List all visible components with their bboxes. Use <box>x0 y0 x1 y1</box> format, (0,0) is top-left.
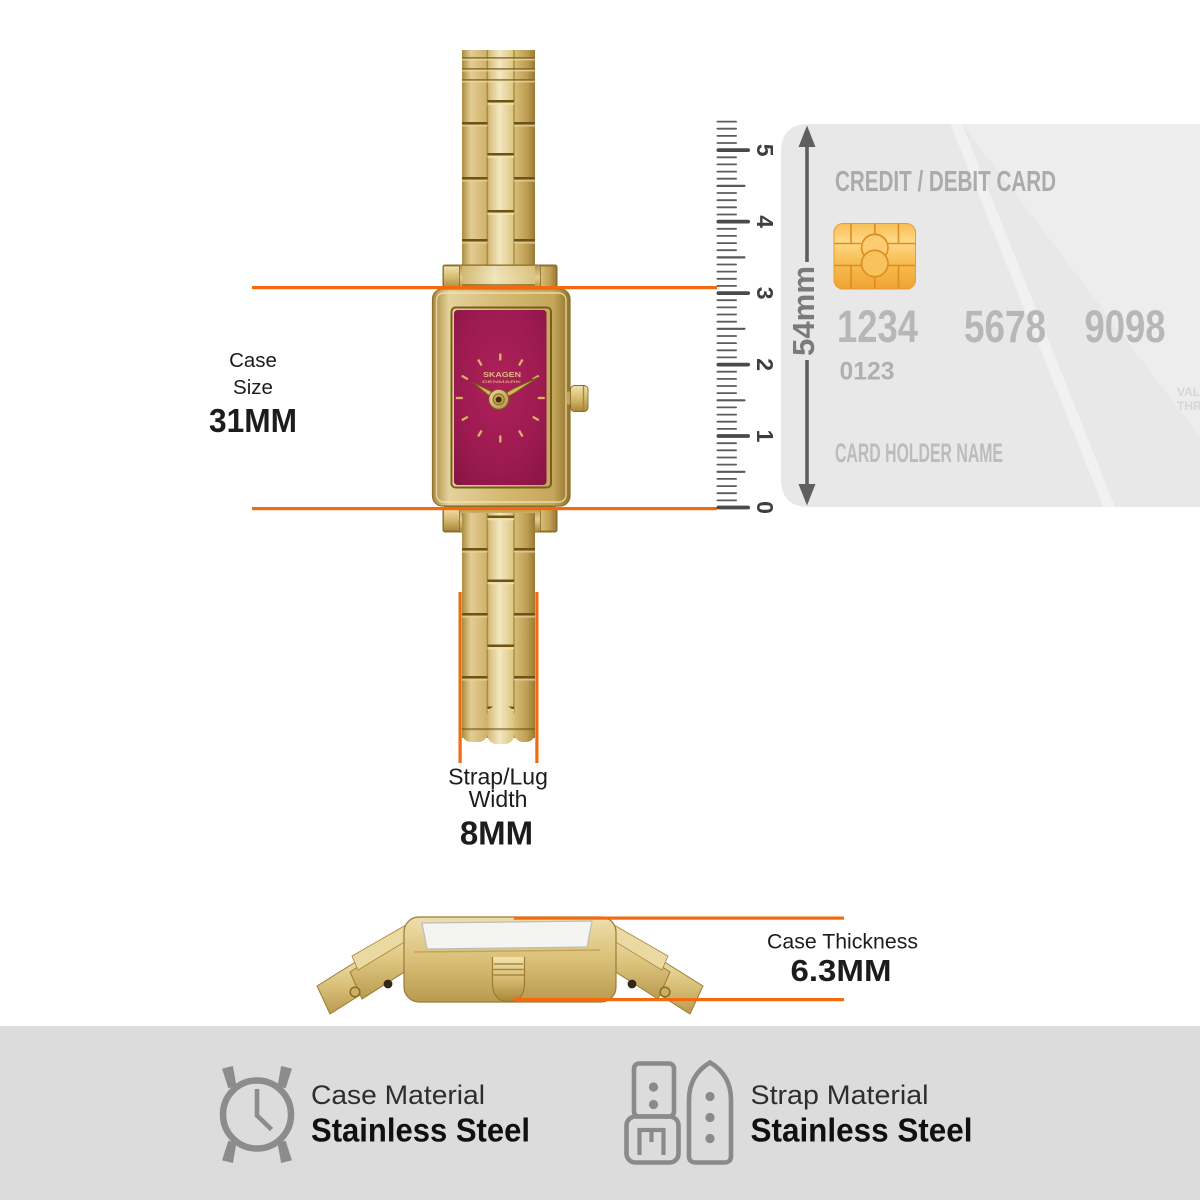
svg-text:CARD HOLDER NAME: CARD HOLDER NAME <box>835 438 1003 468</box>
svg-text:9098: 9098 <box>1085 301 1166 352</box>
svg-text:CREDIT / DEBIT CARD: CREDIT / DEBIT CARD <box>835 166 1056 198</box>
svg-text:Width: Width <box>469 786 528 812</box>
svg-text:2: 2 <box>752 358 778 371</box>
svg-text:0123: 0123 <box>840 358 895 386</box>
svg-text:6.3MM: 6.3MM <box>791 953 892 988</box>
svg-text:4: 4 <box>752 215 778 228</box>
svg-text:Strap Material: Strap Material <box>751 1080 929 1110</box>
svg-text:1234: 1234 <box>837 301 918 352</box>
svg-text:8MM: 8MM <box>460 815 533 852</box>
svg-text:Stainless Steel: Stainless Steel <box>751 1112 973 1149</box>
svg-text:3: 3 <box>752 287 778 300</box>
svg-text:5: 5 <box>752 144 778 157</box>
svg-text:SKAGEN: SKAGEN <box>483 370 521 379</box>
svg-text:Stainless Steel: Stainless Steel <box>311 1112 530 1149</box>
svg-text:Case Thickness: Case Thickness <box>767 931 918 954</box>
svg-text:31MM: 31MM <box>209 402 297 439</box>
svg-text:Case: Case <box>229 349 277 372</box>
svg-text:DENMARK: DENMARK <box>482 380 522 384</box>
svg-text:1: 1 <box>752 430 778 443</box>
svg-text:Size: Size <box>233 376 273 399</box>
svg-text:5678: 5678 <box>964 301 1046 352</box>
svg-text:0: 0 <box>752 501 778 514</box>
svg-text:54mm: 54mm <box>786 266 821 356</box>
svg-text:THRU: THRU <box>1177 399 1200 413</box>
svg-text:VALID: VALID <box>1177 385 1200 399</box>
svg-text:Case Material: Case Material <box>311 1080 485 1110</box>
